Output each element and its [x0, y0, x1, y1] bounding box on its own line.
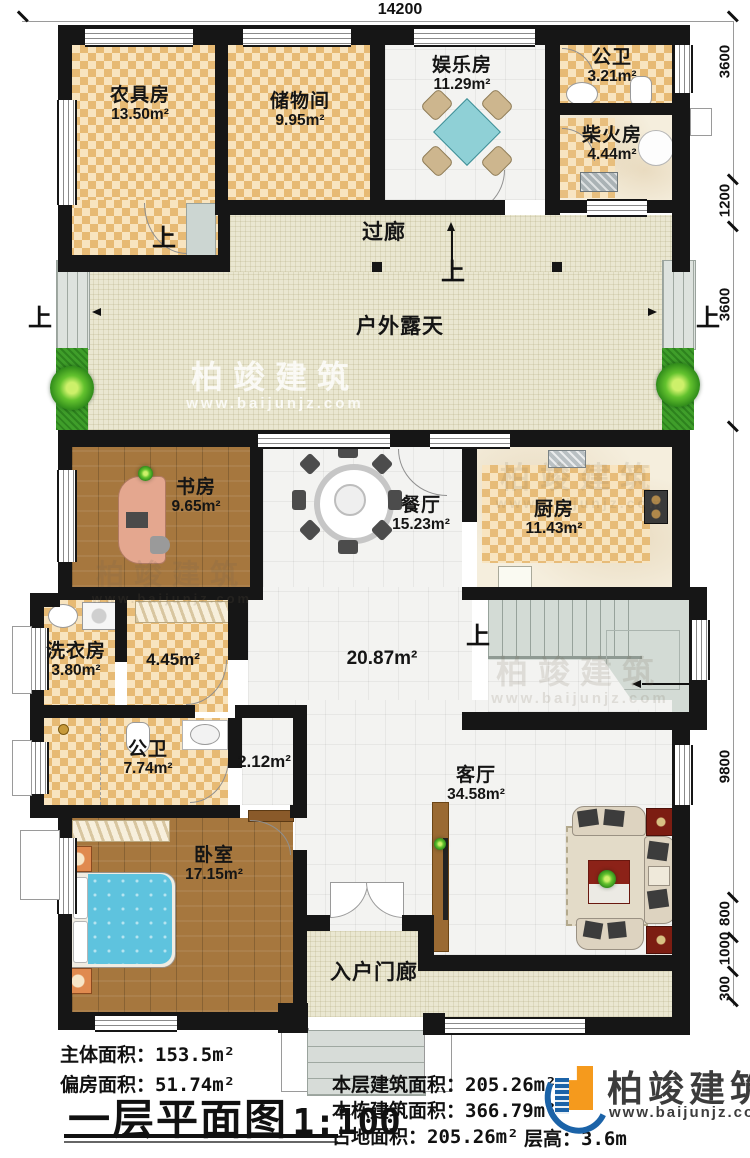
dim-top-value: 14200: [340, 1, 460, 19]
floor-area-line: 本层建筑面积：205.26m²: [332, 1070, 557, 1097]
wall: [647, 200, 690, 213]
wall: [672, 955, 690, 1035]
room-area: 17.15m²: [185, 866, 243, 884]
wall: [545, 25, 560, 215]
window: [85, 27, 193, 47]
room-label-big-hall: 20.87m²: [347, 648, 418, 670]
terrace-floor: [88, 272, 662, 430]
window: [57, 100, 77, 205]
up-label: 上: [441, 252, 465, 287]
brand-logo: 柏竣建筑 www.baijunjz.com: [545, 1058, 745, 1146]
computer-monitor: [126, 512, 148, 528]
room-name: 农具房: [110, 86, 170, 106]
room-label-entertainment: 娱乐房 11.29m²: [432, 56, 492, 94]
wall: [290, 805, 307, 818]
wall: [215, 45, 228, 200]
terrace-steps-left: [56, 260, 90, 350]
up-label: 上: [28, 298, 52, 333]
table-plant: [598, 870, 616, 888]
room-label-small-hall: 4.45m²: [146, 650, 200, 670]
closet: [135, 601, 232, 623]
wall: [672, 430, 690, 600]
window: [29, 742, 49, 794]
wall: [215, 200, 375, 215]
wall: [58, 255, 230, 272]
wall: [560, 103, 672, 115]
room-name: 书房: [171, 478, 220, 498]
floor-plan: 14200 3600 1200 3600 9800 800 1000 300: [0, 0, 750, 1158]
room-name: 储物间: [270, 92, 330, 112]
shower-divider: [100, 718, 101, 805]
cushion: [648, 866, 670, 886]
room-area: 15.23m²: [392, 516, 450, 534]
room-area: 7.74m²: [123, 760, 172, 778]
washing-machine: [82, 602, 116, 630]
dining-table-center: [334, 484, 366, 516]
up-arrow-head: [447, 222, 455, 231]
wall: [672, 215, 690, 272]
wall: [462, 447, 477, 522]
water-heater: [638, 130, 674, 166]
room-area: 20.87m²: [347, 648, 418, 670]
room-area: 13.50m²: [110, 106, 170, 124]
room-area: 9.95m²: [270, 112, 330, 130]
up-label: 上: [696, 298, 720, 333]
cushion: [647, 889, 669, 910]
room-label-terrace: 户外露天: [356, 316, 444, 338]
wall: [418, 955, 672, 971]
title-underline: [64, 1134, 338, 1138]
room-label-firewood: 柴火房 4.44m²: [582, 126, 642, 164]
sink: [190, 724, 220, 745]
wall: [293, 850, 307, 1012]
room-name: 柴火房: [582, 126, 642, 146]
cushion: [607, 921, 627, 939]
desk-chair: [150, 536, 170, 554]
desk-plant: [138, 466, 153, 481]
main-area-line: 主体面积：153.5m²: [60, 1040, 235, 1067]
fridge: [498, 566, 532, 588]
stove: [580, 172, 618, 192]
wall: [370, 200, 505, 215]
room-area: 9.65m²: [171, 498, 220, 516]
window: [243, 27, 351, 47]
wall: [462, 712, 707, 730]
room-area: 34.58m²: [447, 786, 505, 804]
room-label-laundry: 洗衣房 3.80m²: [46, 642, 106, 680]
room-area: 11.43m²: [526, 520, 583, 538]
wall: [30, 705, 195, 718]
room-label-storage: 储物间 9.95m²: [270, 92, 330, 130]
room-area: 3.21m²: [587, 68, 636, 86]
wall: [228, 600, 248, 660]
room-area: 4.45m²: [146, 650, 200, 670]
window: [673, 745, 693, 805]
window: [445, 1017, 585, 1035]
dim-right-300: 300: [717, 954, 734, 1024]
tv-plant: [434, 838, 446, 850]
room-name: 洗衣房: [46, 642, 106, 662]
room-name: 户外露天: [356, 316, 444, 338]
room-label-dining: 餐厅 15.23m²: [392, 496, 450, 534]
wall: [370, 25, 385, 215]
window: [258, 432, 390, 449]
room-label-study: 书房 9.65m²: [171, 478, 220, 516]
laundry-sink: [48, 604, 78, 628]
cushion: [583, 921, 604, 940]
porch-column: [281, 1028, 309, 1092]
porch-floor-right: [428, 971, 674, 1017]
pillar: [423, 1013, 445, 1035]
pillar: [552, 262, 562, 272]
room-name: 卧室: [185, 846, 243, 866]
room-label-corridor: 过廊: [362, 222, 406, 244]
wall: [545, 200, 587, 213]
room-name: 娱乐房: [432, 56, 492, 76]
room-name: 客厅: [447, 766, 505, 786]
room-label-living: 客厅 34.58m²: [447, 766, 505, 804]
pillow: [73, 921, 88, 963]
chair: [338, 540, 358, 554]
up-label: 上: [466, 616, 490, 651]
cooktop: [644, 490, 668, 524]
terrace-steps-right: [662, 260, 696, 350]
window: [690, 620, 710, 680]
exterior-door: [690, 108, 712, 136]
step-arrow: [648, 308, 657, 316]
room-label-kitchen: 厨房 11.43m²: [526, 500, 583, 538]
dim-right-1200: 1200: [717, 166, 734, 236]
dimension-line-top: [22, 21, 734, 22]
up-label: 上: [152, 218, 176, 253]
main-area-label: 主体面积：: [60, 1045, 155, 1066]
wall: [58, 587, 263, 600]
building-area-line: 本栋建筑面积：366.79m²: [332, 1096, 557, 1123]
floor-area-value: 205.26m²: [465, 1074, 557, 1096]
pillar: [372, 262, 382, 272]
window-sill: [12, 740, 32, 796]
wall: [218, 200, 230, 262]
wall: [115, 600, 127, 662]
wall: [250, 447, 263, 587]
pillar: [278, 1003, 308, 1033]
wall: [300, 915, 330, 931]
footprint-area-line: 占地面积：205.26m²: [332, 1122, 519, 1149]
window: [57, 838, 77, 914]
dim-right-9800: 9800: [717, 732, 734, 802]
window: [57, 470, 77, 562]
window: [95, 1014, 177, 1032]
window-sill: [20, 830, 60, 900]
room-label-bath-top: 公卫 3.21m²: [587, 48, 636, 86]
floor-area-label: 本层建筑面积：: [332, 1075, 465, 1096]
dim-right-3600a: 3600: [717, 27, 734, 97]
main-area-value: 153.5m²: [155, 1044, 235, 1066]
window: [414, 27, 535, 47]
room-name: 厨房: [526, 500, 583, 520]
brand-logo-icon: [545, 1062, 603, 1128]
wall: [462, 587, 707, 600]
wall: [293, 705, 307, 818]
window-sill: [12, 626, 32, 694]
room-name: 过廊: [362, 222, 406, 244]
room-label-bath-main: 公卫 7.74m²: [123, 740, 172, 778]
room-name: 公卫: [123, 740, 172, 760]
window: [673, 45, 693, 93]
wall: [30, 805, 240, 818]
room-area: 11.29m²: [432, 76, 492, 94]
cushion: [647, 841, 669, 862]
stair-arrow-head: [632, 680, 641, 688]
room-label-farm-tool: 农具房 13.50m²: [110, 86, 170, 124]
building-area-value: 366.79m²: [465, 1100, 557, 1122]
plant-right: [656, 363, 700, 407]
footprint-label: 占地面积：: [332, 1127, 427, 1148]
building-area-label: 本栋建筑面积：: [332, 1101, 465, 1122]
footprint-value: 205.26m²: [427, 1126, 519, 1148]
title-underline-2: [64, 1141, 338, 1143]
wardrobe: [72, 820, 170, 842]
room-label-passage: 2.12m²: [237, 752, 291, 772]
cushion: [603, 809, 625, 827]
plant-left: [50, 366, 94, 410]
range-hood: [548, 450, 586, 468]
tv: [443, 838, 448, 920]
logo-building-blue: [555, 1078, 569, 1114]
brand-url: www.baijunjz.com: [609, 1104, 750, 1121]
ceiling-lamp: [58, 724, 69, 735]
cushion: [577, 809, 599, 828]
step-arrow: [92, 308, 101, 316]
room-area: 3.80m²: [46, 662, 106, 680]
door: [186, 203, 216, 257]
room-area: 2.12m²: [237, 752, 291, 772]
window: [587, 199, 647, 217]
chair: [292, 490, 306, 510]
room-name: 公卫: [587, 48, 636, 68]
room-name: 入户门廊: [330, 962, 418, 984]
bed-blanket: [88, 874, 172, 964]
room-area: 4.44m²: [582, 146, 642, 164]
room-label-porch: 入户门廊: [330, 962, 418, 984]
room-name: 餐厅: [392, 496, 450, 516]
room-label-bedroom: 卧室 17.15m²: [185, 846, 243, 884]
